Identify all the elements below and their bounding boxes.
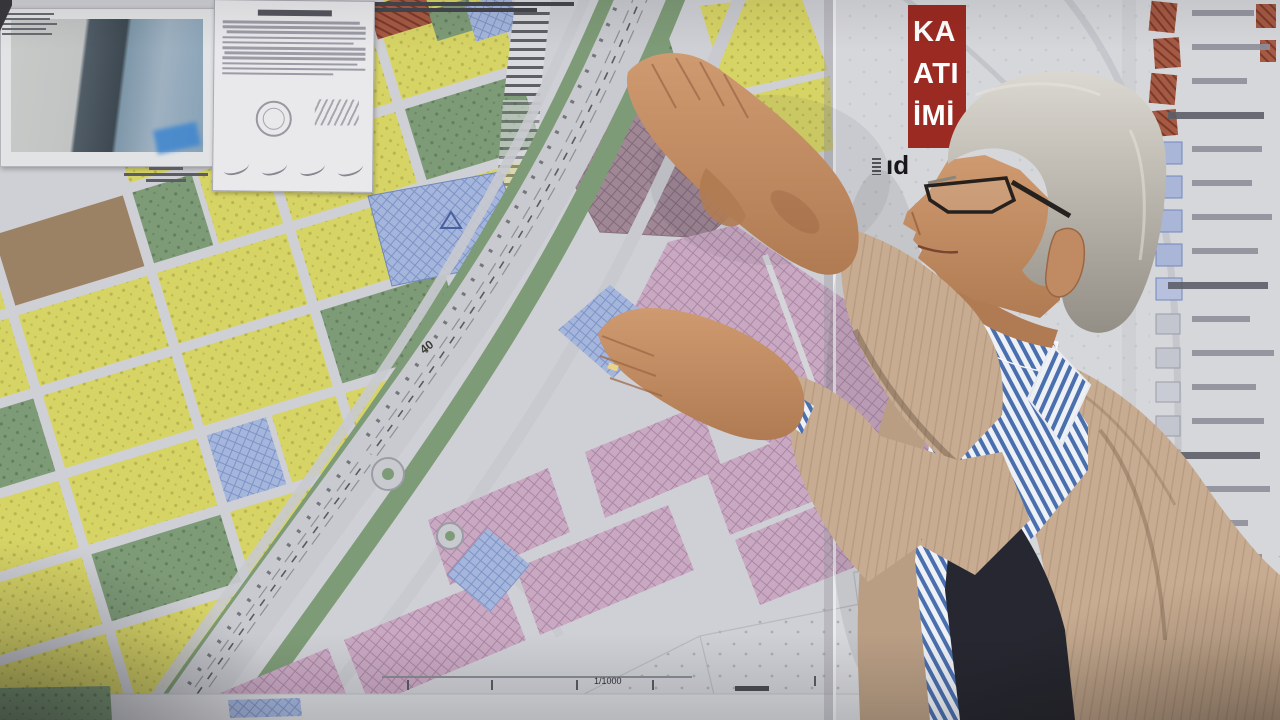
photo-scene: KA ATI İMİ ıd 40 1/1000: [0, 0, 1280, 720]
gesturing-hand: [598, 308, 804, 440]
presenter: [0, 0, 1280, 720]
